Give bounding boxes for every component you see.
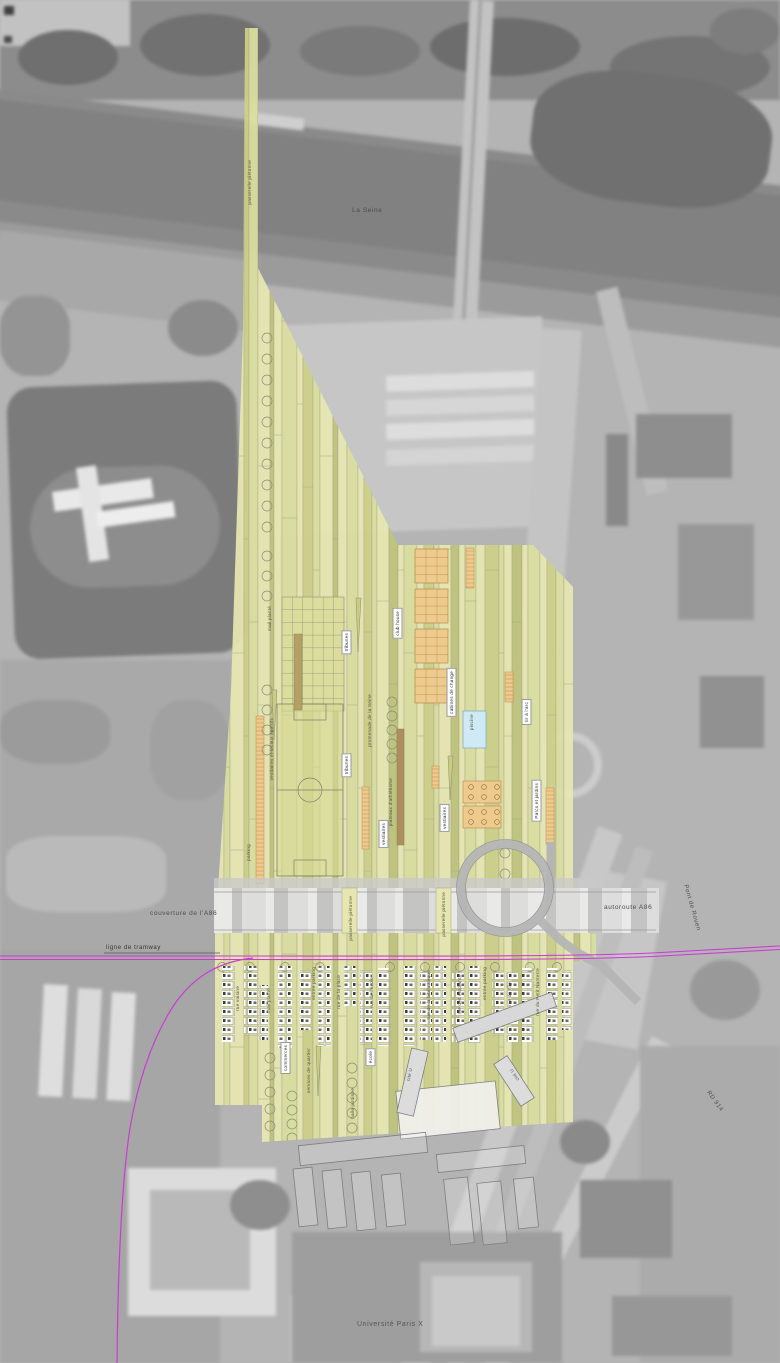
label-cabines-de-change: cabines de change	[447, 668, 457, 717]
label-parcs-jardins: Parcs et jardins	[532, 780, 542, 822]
label-mail-plante-2: mail planté	[266, 988, 272, 1013]
label-club-house: club house	[393, 608, 403, 639]
a86-covered-band	[214, 878, 659, 933]
masterplan-drawing	[0, 0, 780, 1363]
label-universite-paris-x: Université Paris X	[357, 1321, 423, 1328]
label-promenade-seine: promenade de la Seine	[367, 694, 373, 747]
label-passerelle-pietonne-top: passerelle piétonne	[247, 160, 253, 205]
label-ligne-de-tramway: ligne de tramway	[106, 945, 161, 951]
label-vestiaires-locaux: vestiaires et locaux sportifs	[269, 718, 275, 780]
label-commerces: commerces	[281, 1042, 291, 1074]
label-rue-de-la-place: rue de la place	[336, 975, 342, 1009]
label-rue-de-lile: rue de l'île	[507, 982, 513, 1006]
label-passerelle-pietonne-2: passerelle piétonne	[348, 896, 354, 941]
site-plan-canvas: passerelle piétonne La Seine mail planté…	[0, 0, 780, 1363]
label-couverture-a86: couverture de l'A86	[150, 910, 217, 917]
label-entree-parking-1: entrée parking	[311, 967, 317, 1000]
label-rue-petit-nanterre: rue du Petit Nanterre	[535, 968, 541, 1016]
label-plateaux-athletisme: plateaux d'athlétisme	[388, 778, 394, 826]
label-tribunes-1: tribunes	[342, 630, 352, 654]
label-tir-a-larc: tir à l'arc	[522, 699, 532, 725]
label-vestiaires-1: vestiaires	[379, 820, 389, 848]
label-rue-voisine: rue voisine	[235, 986, 241, 1011]
label-rue-bibliotheque: rue de la bibliothèque	[426, 970, 432, 1019]
label-parking: parking	[246, 844, 252, 861]
label-rue-des-etudiants: rue des étudiants	[457, 975, 463, 1015]
label-services-quartier: services de quartier	[306, 1048, 312, 1093]
label-vestiaires-2: vestiaires	[440, 804, 450, 832]
label-ecole: école	[366, 1048, 376, 1066]
label-la-seine: La Seine	[352, 207, 382, 214]
label-mail-plante-1: mail planté	[267, 606, 273, 631]
label-piscine: piscine	[469, 714, 475, 730]
label-halle-jardinee: halle jardinée	[350, 1088, 356, 1119]
label-entree-parking-2: entrée parking	[482, 967, 488, 1000]
label-tribunes-2: tribunes	[342, 753, 352, 777]
label-passerelle-pietonne-3: passerelle piétonne	[441, 892, 447, 937]
label-autoroute-a86: autoroute A86	[604, 904, 652, 911]
label-rue-de-lecole: rue de l'école	[369, 977, 375, 1008]
